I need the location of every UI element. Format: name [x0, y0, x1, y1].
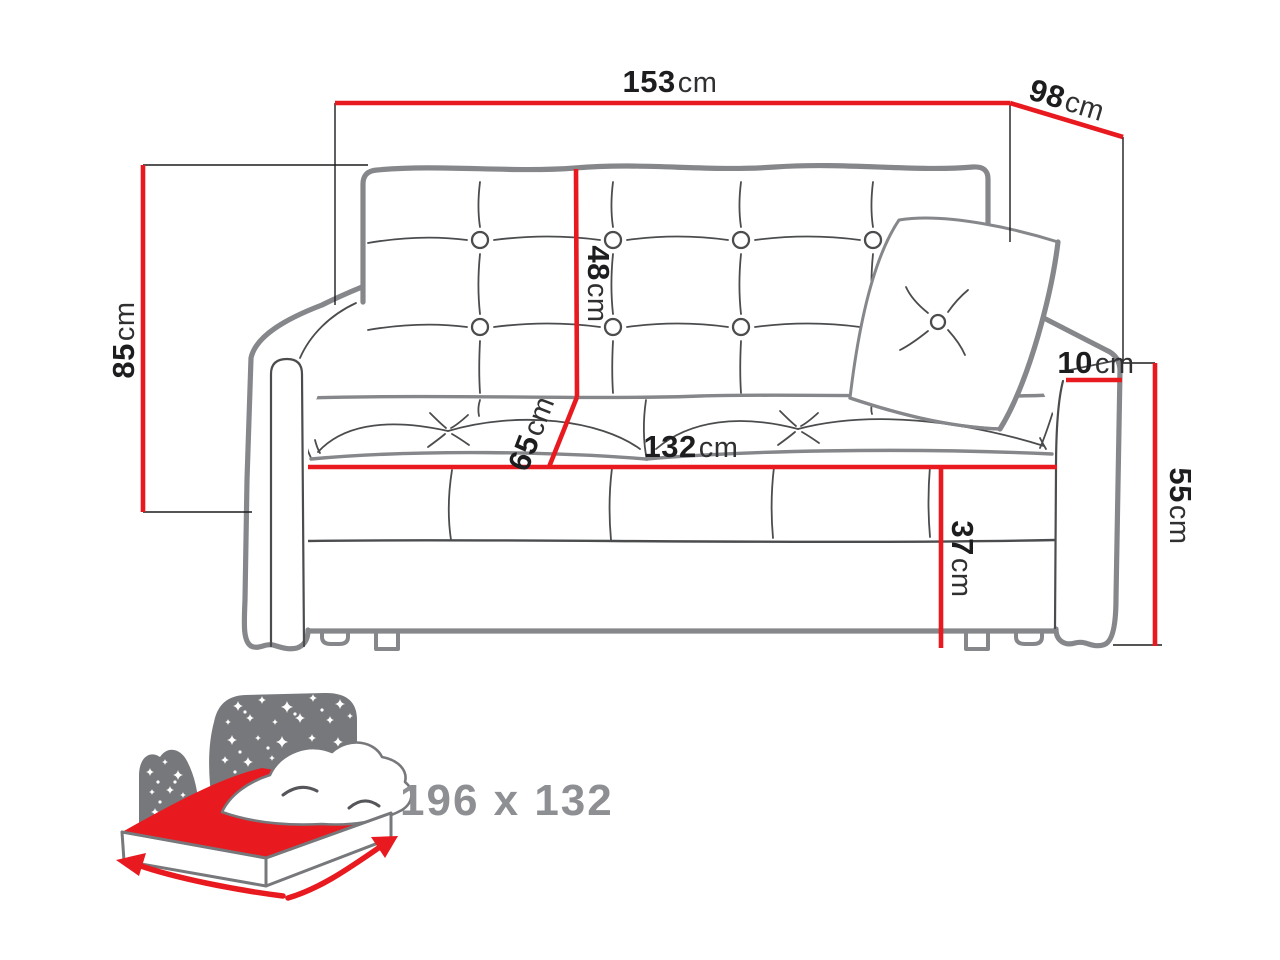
label-overall-width: 153cm [623, 64, 718, 99]
label-seat-width: 132cm [644, 429, 739, 464]
label-backrest-height: 48cm [581, 245, 616, 322]
label-armrest-width: 10cm [1057, 345, 1134, 380]
sleeping-function-icon: 196 x 132 [116, 693, 614, 898]
dimension-diagram: 153cm 98cm 85cm 48cm 65cm 132cm 10cm 55c… [0, 0, 1280, 960]
sleeping-size-label: 196 x 132 [400, 776, 614, 825]
seat-front-seams [449, 466, 930, 540]
label-overall-height: 85cm [106, 301, 141, 378]
label-armrest-height: 55cm [1163, 467, 1198, 544]
sofa-illustration [244, 166, 1120, 649]
dim-line-backrest-height [576, 169, 577, 397]
label-seat-height: 37cm [945, 520, 980, 597]
sofa-legs [322, 633, 1042, 649]
